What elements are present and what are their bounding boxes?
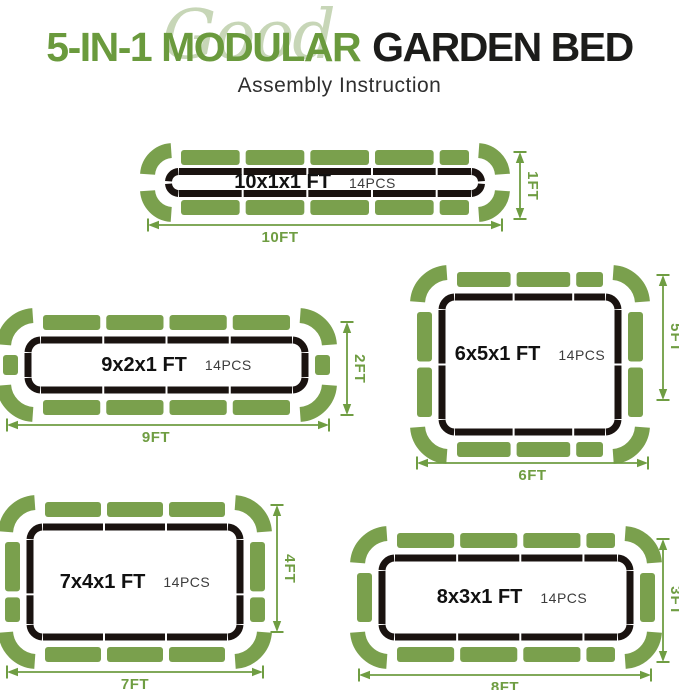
height-dimension-arrow: 5FT <box>656 274 679 401</box>
height-dimension-arrow: 2FT <box>340 321 368 416</box>
width-dimension-arrow: 8FT <box>358 668 652 690</box>
bed-pieces-label: 14PCS <box>163 574 210 590</box>
bed-diagram-6x5x1: 6x5x1 FT 14PCS 6FT 5FT <box>0 0 679 690</box>
bed-caption: 10x1x1 FT 14PCS <box>137 150 493 215</box>
bed-caption: 7x4x1 FT 14PCS <box>5 502 265 662</box>
width-dimension-label: 9FT <box>0 429 318 446</box>
bed-illustration: 9x2x1 FT 14PCS <box>3 315 330 415</box>
width-dimension-label: 6FT <box>416 467 649 484</box>
bed-diagram-10x1x1: 10x1x1 FT 14PCS 10FT 1FT <box>0 0 679 690</box>
bed-illustration: 8x3x1 FT 14PCS <box>357 533 655 662</box>
bed-size-label: 10x1x1 FT <box>234 171 331 194</box>
width-dimension-label: 10FT <box>102 229 458 246</box>
bed-caption: 6x5x1 FT 14PCS <box>417 262 643 447</box>
bed-pieces-label: 14PCS <box>349 175 396 191</box>
height-dimension-label: 3FT <box>667 586 679 616</box>
width-dimension-arrow: 7FT <box>6 665 264 690</box>
bed-illustration: 7x4x1 FT 14PCS <box>5 502 265 662</box>
width-dimension-label: 8FT <box>358 679 652 690</box>
height-dimension-arrow: 3FT <box>656 538 679 663</box>
width-dimension-arrow: 9FT <box>6 418 330 444</box>
page-subtitle: Assembly Instruction <box>0 74 679 98</box>
page-title: 5-IN-1 MODULARGARDEN BED <box>0 24 679 71</box>
height-dimension-label: 4FT <box>281 554 298 584</box>
height-dimension-label: 5FT <box>667 323 679 353</box>
width-dimension-arrow: 10FT <box>147 218 503 244</box>
bed-size-label: 8x3x1 FT <box>437 586 523 609</box>
bed-pieces-label: 14PCS <box>205 357 252 373</box>
page-title-green-part: 5-IN-1 MODULAR <box>46 24 360 70</box>
width-dimension-arrow: 6FT <box>416 456 649 482</box>
bed-pieces-label: 14PCS <box>540 590 587 606</box>
width-dimension-label: 7FT <box>6 676 264 690</box>
bed-size-label: 9x2x1 FT <box>101 354 187 377</box>
page-title-dark-part: GARDEN BED <box>372 24 633 70</box>
bed-size-label: 7x4x1 FT <box>60 571 146 594</box>
bed-size-label: 6x5x1 FT <box>455 343 541 366</box>
bed-illustration: 6x5x1 FT 14PCS <box>417 272 643 457</box>
height-dimension-label: 1FT <box>524 171 541 201</box>
height-dimension-label: 2FT <box>351 354 368 384</box>
bed-caption: 8x3x1 FT 14PCS <box>363 533 661 662</box>
bed-illustration: 10x1x1 FT 14PCS <box>147 150 503 215</box>
height-dimension-arrow: 4FT <box>270 504 298 633</box>
bed-diagram-7x4x1: 7x4x1 FT 14PCS 7FT 4FT <box>0 0 679 690</box>
assembly-instruction-page: Good 5-IN-1 MODULARGARDEN BED Assembly I… <box>0 0 679 690</box>
bed-diagram-8x3x1: 8x3x1 FT 14PCS 8FT 3FT <box>0 0 679 690</box>
bed-diagram-9x2x1: 9x2x1 FT 14PCS 9FT 2FT <box>0 0 679 690</box>
bed-caption: 9x2x1 FT 14PCS <box>13 315 340 415</box>
bed-pieces-label: 14PCS <box>558 347 605 363</box>
height-dimension-arrow: 1FT <box>513 151 541 220</box>
